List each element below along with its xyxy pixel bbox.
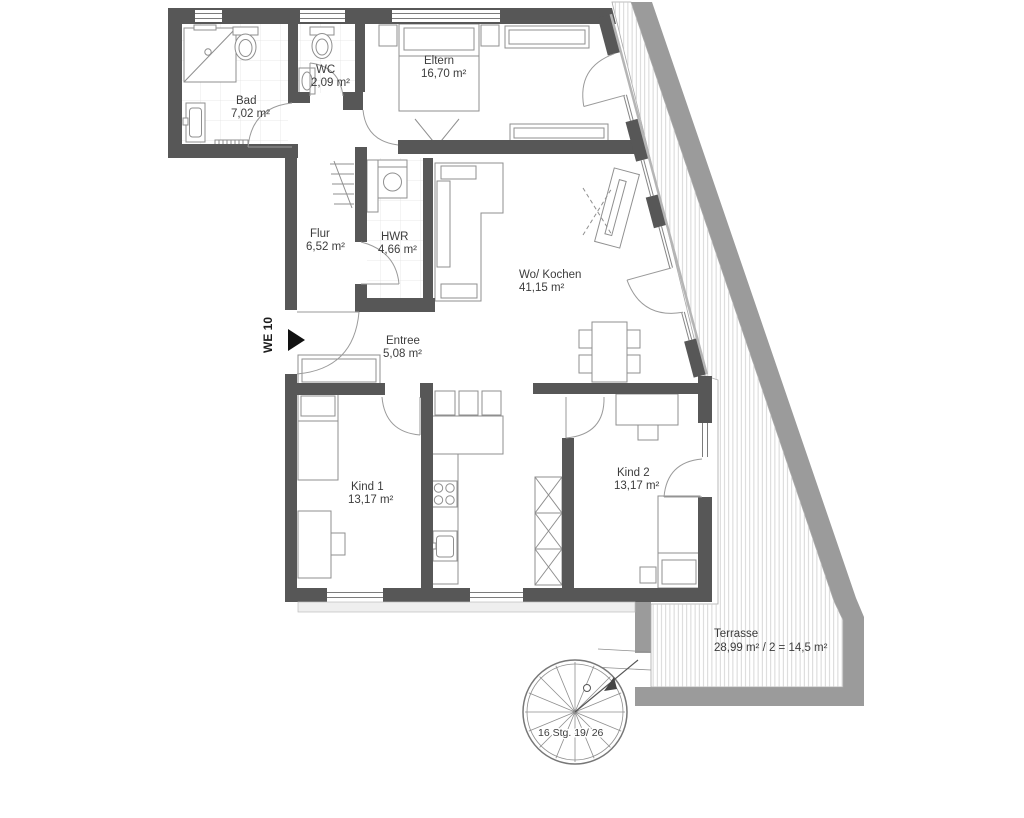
wall-right-b: [698, 497, 712, 590]
room-label-wokochen-name: Wo/ Kochen: [519, 269, 581, 281]
terrace-parapet-left-stub: [635, 602, 651, 653]
bed-kind1: [298, 392, 338, 480]
room-label-terrasse-name: Terrasse: [714, 628, 758, 640]
bathtub-shower: [184, 25, 236, 82]
toilet-wc: [310, 27, 334, 59]
wall-eltern-bottom: [398, 140, 638, 154]
room-label-eltern-name: Eltern: [424, 55, 454, 67]
wall-wc-pier: [343, 92, 363, 110]
background: [0, 0, 1024, 818]
wall-bad-wc: [288, 24, 298, 103]
room-label-wc-area: 2,09 m²: [311, 77, 350, 89]
toilet-bad: [233, 27, 258, 60]
wall-kind2-left: [562, 438, 574, 588]
room-label-flur-name: Flur: [310, 228, 330, 240]
wall-left-lower: [285, 374, 297, 600]
wall-wc-bottom: [288, 92, 310, 103]
wall-left-bad: [168, 8, 182, 158]
wall-wc-eltern: [355, 24, 365, 92]
wardrobe-x: [535, 477, 562, 585]
room-label-hwr-area: 4,66 m²: [378, 244, 417, 256]
unit-entrance-label: WE 10: [261, 317, 275, 353]
stair-label: 16 Stg. 19/ 26: [538, 727, 604, 739]
room-label-hwr-name: HWR: [381, 231, 408, 243]
sink-icon: [431, 531, 457, 561]
stair-start-marker: [584, 685, 591, 692]
room-label-terrasse-area: 28,99 m² / 2 = 14,5 m²: [714, 642, 828, 654]
window-bad-top: [195, 10, 222, 22]
wall-entree-kind1: [285, 383, 385, 395]
floor-plan-svg: 16 Stg. 19/ 26 WE 10 Bad 7,02 m² WC 2,09…: [0, 0, 1024, 818]
window-kitchen-bottom: [470, 588, 523, 602]
room-label-flur-area: 6,52 m²: [306, 241, 345, 253]
window-kind1-bottom: [327, 588, 383, 602]
room-label-bad-area: 7,02 m²: [231, 108, 270, 120]
window-sill-band: [298, 602, 635, 612]
room-label-kind2-area: 13,17 m²: [614, 480, 660, 492]
room-label-wokochen-area: 41,15 m²: [519, 282, 565, 294]
window-kind2-right: [698, 423, 712, 457]
wall-hwr-right: [423, 158, 433, 306]
wall-kind1-kitchen: [421, 383, 433, 590]
window-wc-top: [300, 10, 345, 22]
room-label-kind2-name: Kind 2: [617, 467, 650, 479]
wall-top: [168, 8, 608, 24]
room-label-kind1-area: 13,17 m²: [348, 494, 394, 506]
washbasin-bad: [183, 103, 205, 142]
room-label-eltern-area: 16,70 m²: [421, 68, 467, 80]
wardrobe-eltern: [505, 26, 589, 48]
window-eltern-top: [392, 10, 500, 22]
room-label-bad-name: Bad: [236, 95, 256, 107]
wall-kind2-top: [533, 383, 712, 394]
wall-hwr-left-a: [355, 147, 367, 242]
wall-bad-bottom: [168, 144, 298, 158]
room-label-entree-area: 5,08 m²: [383, 348, 422, 360]
stove-icon: [432, 481, 457, 507]
wall-left-upper: [285, 152, 297, 310]
floor-plan: 16 Stg. 19/ 26 WE 10 Bad 7,02 m² WC 2,09…: [0, 0, 1024, 818]
room-label-wc-name: WC: [316, 64, 335, 76]
terrace-parapet-bottom: [635, 687, 864, 706]
sideboard-eltern: [510, 124, 608, 142]
room-label-kind1-name: Kind 1: [351, 481, 384, 493]
wardrobe-entree: [298, 355, 380, 386]
room-label-entree-name: Entree: [386, 335, 420, 347]
